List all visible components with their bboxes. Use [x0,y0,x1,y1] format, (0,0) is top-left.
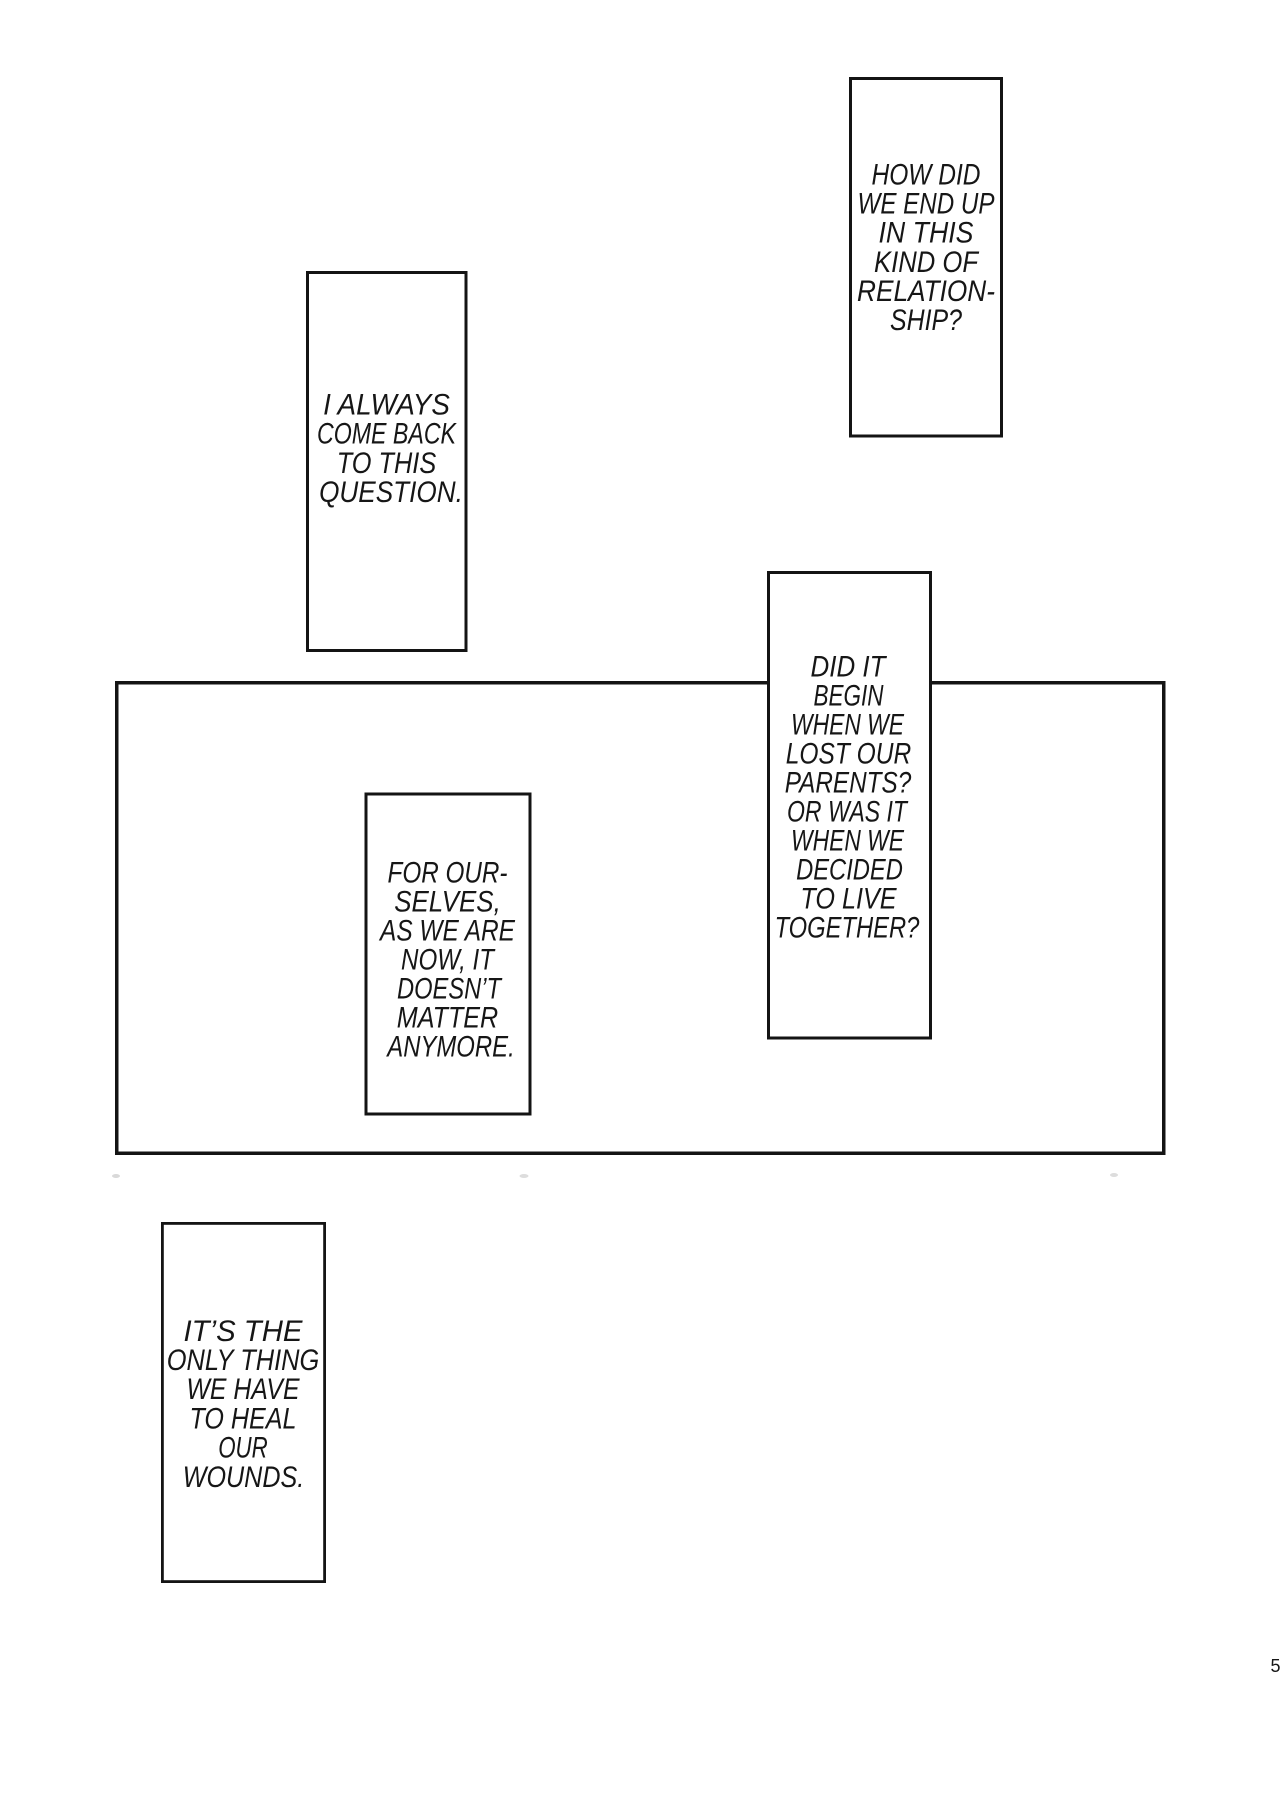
svg-text:TO HEAL: TO HEAL [190,1402,297,1435]
svg-text:SELVES,: SELVES, [394,885,501,918]
svg-text:MATTER: MATTER [397,1002,498,1035]
svg-text:SHIP?: SHIP? [890,304,962,337]
svg-text:ONLY THING: ONLY THING [167,1344,320,1377]
svg-text:TO THIS: TO THIS [337,447,437,480]
svg-text:WE END UP: WE END UP [858,188,995,221]
svg-text:WE HAVE: WE HAVE [187,1373,300,1406]
svg-text:ANYMORE.: ANYMORE. [386,1031,515,1064]
svg-text:COME BACK: COME BACK [317,418,457,451]
svg-text:RELATION-: RELATION- [857,275,995,308]
svg-text:KIND OF: KIND OF [874,246,980,279]
svg-text:IN THIS: IN THIS [879,217,974,250]
svg-text:5: 5 [1270,1656,1280,1676]
svg-text:IT’S THE: IT’S THE [184,1315,303,1348]
svg-text:HOW DID: HOW DID [872,158,981,191]
svg-text:OUR: OUR [218,1432,268,1465]
svg-text:QUESTION.: QUESTION. [319,476,463,509]
svg-text:NOW, IT: NOW, IT [401,943,496,976]
svg-text:WOUNDS.: WOUNDS. [183,1461,305,1494]
svg-text:I ALWAYS: I ALWAYS [323,388,450,421]
svg-text:TOGETHER?: TOGETHER? [775,912,920,945]
